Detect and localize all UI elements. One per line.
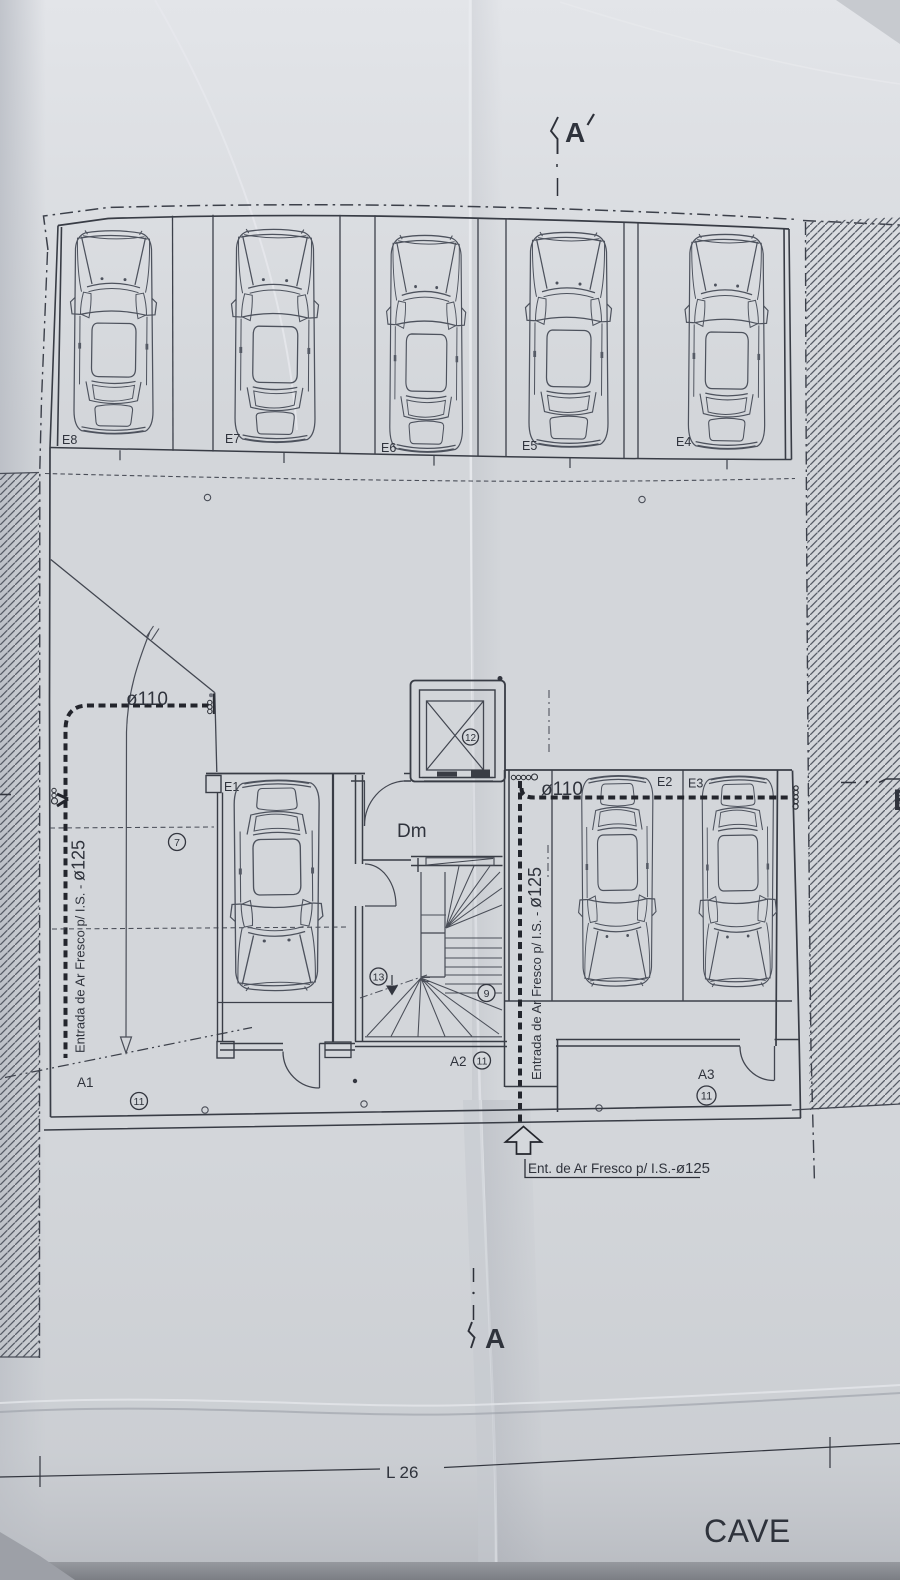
- svg-text:A: A: [565, 117, 585, 148]
- svg-text:E2: E2: [657, 775, 672, 789]
- svg-text:E8: E8: [62, 433, 77, 447]
- svg-text:E6: E6: [381, 441, 396, 455]
- svg-text:11: 11: [477, 1056, 488, 1068]
- svg-text:13: 13: [373, 972, 385, 984]
- svg-text:9: 9: [484, 988, 490, 1000]
- svg-text:E4: E4: [676, 435, 691, 449]
- svg-text:7: 7: [174, 837, 180, 849]
- svg-text:A1: A1: [77, 1075, 94, 1090]
- svg-text:11: 11: [134, 1096, 145, 1108]
- svg-text:A3: A3: [698, 1067, 715, 1082]
- svg-text:11: 11: [701, 1091, 712, 1103]
- svg-text:A: A: [485, 1323, 505, 1354]
- svg-text:E: E: [893, 784, 900, 817]
- svg-text:E1: E1: [224, 780, 239, 794]
- svg-text:ø110: ø110: [541, 779, 583, 800]
- svg-text:A2: A2: [450, 1054, 467, 1069]
- svg-text:ø110: ø110: [126, 689, 168, 710]
- svg-text:L 26: L 26: [386, 1463, 418, 1482]
- svg-text:Dm: Dm: [397, 821, 427, 842]
- svg-text:12: 12: [465, 733, 477, 744]
- svg-text:E5: E5: [522, 439, 537, 453]
- svg-text:CAVE: CAVE: [704, 1513, 791, 1549]
- svg-text:Ent. de Ar Fresco p/ I.S.-ø125: Ent. de Ar Fresco p/ I.S.-ø125: [528, 1160, 710, 1177]
- svg-text:E3: E3: [688, 777, 703, 791]
- svg-text:E7: E7: [225, 432, 240, 446]
